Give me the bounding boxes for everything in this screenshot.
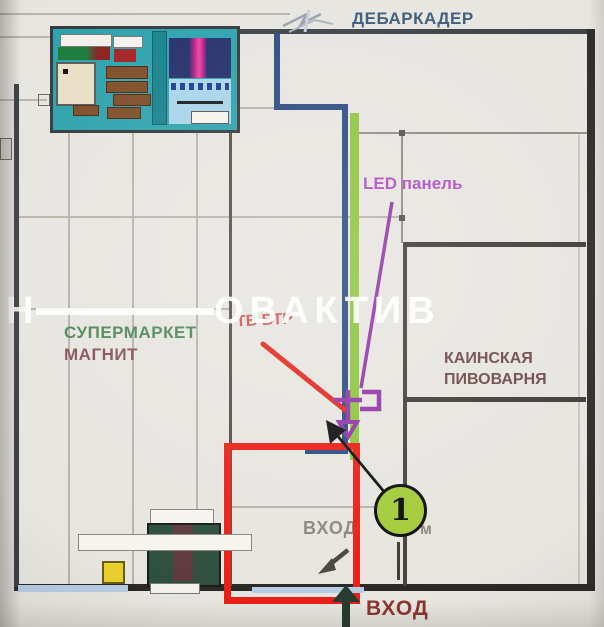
bottom-strip-blue-1 [18, 585, 128, 592]
right-section-line-top [350, 132, 588, 134]
marker-1-number: 1 [390, 493, 411, 528]
inset-label-box-2 [113, 36, 143, 48]
inset-room-beige [56, 62, 96, 106]
inset-shelf-4 [107, 107, 141, 119]
wall-right [587, 29, 595, 589]
watermark-dash [36, 308, 214, 315]
entrance-arrow-icon [329, 585, 363, 627]
measure-tick [397, 542, 400, 580]
exterior-line-left-1 [0, 36, 50, 38]
inset-block-navy [169, 38, 231, 78]
brewery-label-line2: ПИВОВАРНЯ [444, 371, 547, 389]
inset-column [152, 31, 167, 125]
inset-block-red [114, 49, 136, 62]
label-box-lobby-wide [78, 534, 252, 551]
inset-label-box-3 [191, 111, 229, 124]
inset-magenta-stripe [189, 38, 207, 78]
marker-1-badge: 1 [374, 484, 427, 537]
yellow-marker-box [102, 561, 125, 584]
watermark: Н ОВАКТИВ [0, 288, 450, 334]
led-panel-label: LED панель [363, 174, 462, 194]
backroom-inset [50, 26, 240, 133]
wall-brewery-bottom [404, 397, 586, 402]
sketch-mark-icon [281, 6, 345, 38]
inset-shelf-3 [113, 94, 151, 106]
inner-entrance-arrow-icon [314, 544, 354, 580]
route-blue-segment-1 [274, 33, 280, 108]
watermark-prefix: Н [6, 290, 39, 333]
brewery-label-line1: КАИНСКАЯ [444, 350, 533, 368]
inset-shelf-1 [106, 66, 148, 79]
inset-strip-green-red [58, 47, 110, 60]
inset-label-box-1 [60, 34, 112, 47]
entrance-bottom-label: ВХОД [366, 597, 429, 621]
wall-left [14, 84, 19, 587]
inset-shelf-5 [73, 105, 99, 116]
right-wall-inner-line [578, 135, 580, 585]
wall-junction-dot-1 [399, 130, 405, 136]
bottom-label-box [150, 583, 200, 594]
inset-room-dot [63, 69, 68, 74]
wall-brewery-top [404, 242, 586, 247]
debarkader-label: ДЕБАРКАДЕР [352, 9, 474, 29]
route-blue-segment-2 [274, 104, 348, 110]
floor-plan-photo: ДЕБАРКАДЕР LED панель СУПЕРМАРКЕТ МАГНИТ… [0, 0, 604, 627]
inset-black-line [177, 101, 223, 104]
inset-shelf-2 [106, 81, 148, 93]
lobby-block [147, 523, 221, 587]
inset-area-lightblue [169, 79, 231, 124]
inset-dash-row [171, 83, 229, 90]
watermark-suffix: ОВАКТИВ [214, 290, 441, 333]
exterior-box-1 [38, 94, 50, 106]
supermarket-label-line2: МАГНИТ [64, 345, 138, 365]
exterior-box-2 [0, 138, 12, 160]
exterior-line-top [0, 13, 290, 15]
